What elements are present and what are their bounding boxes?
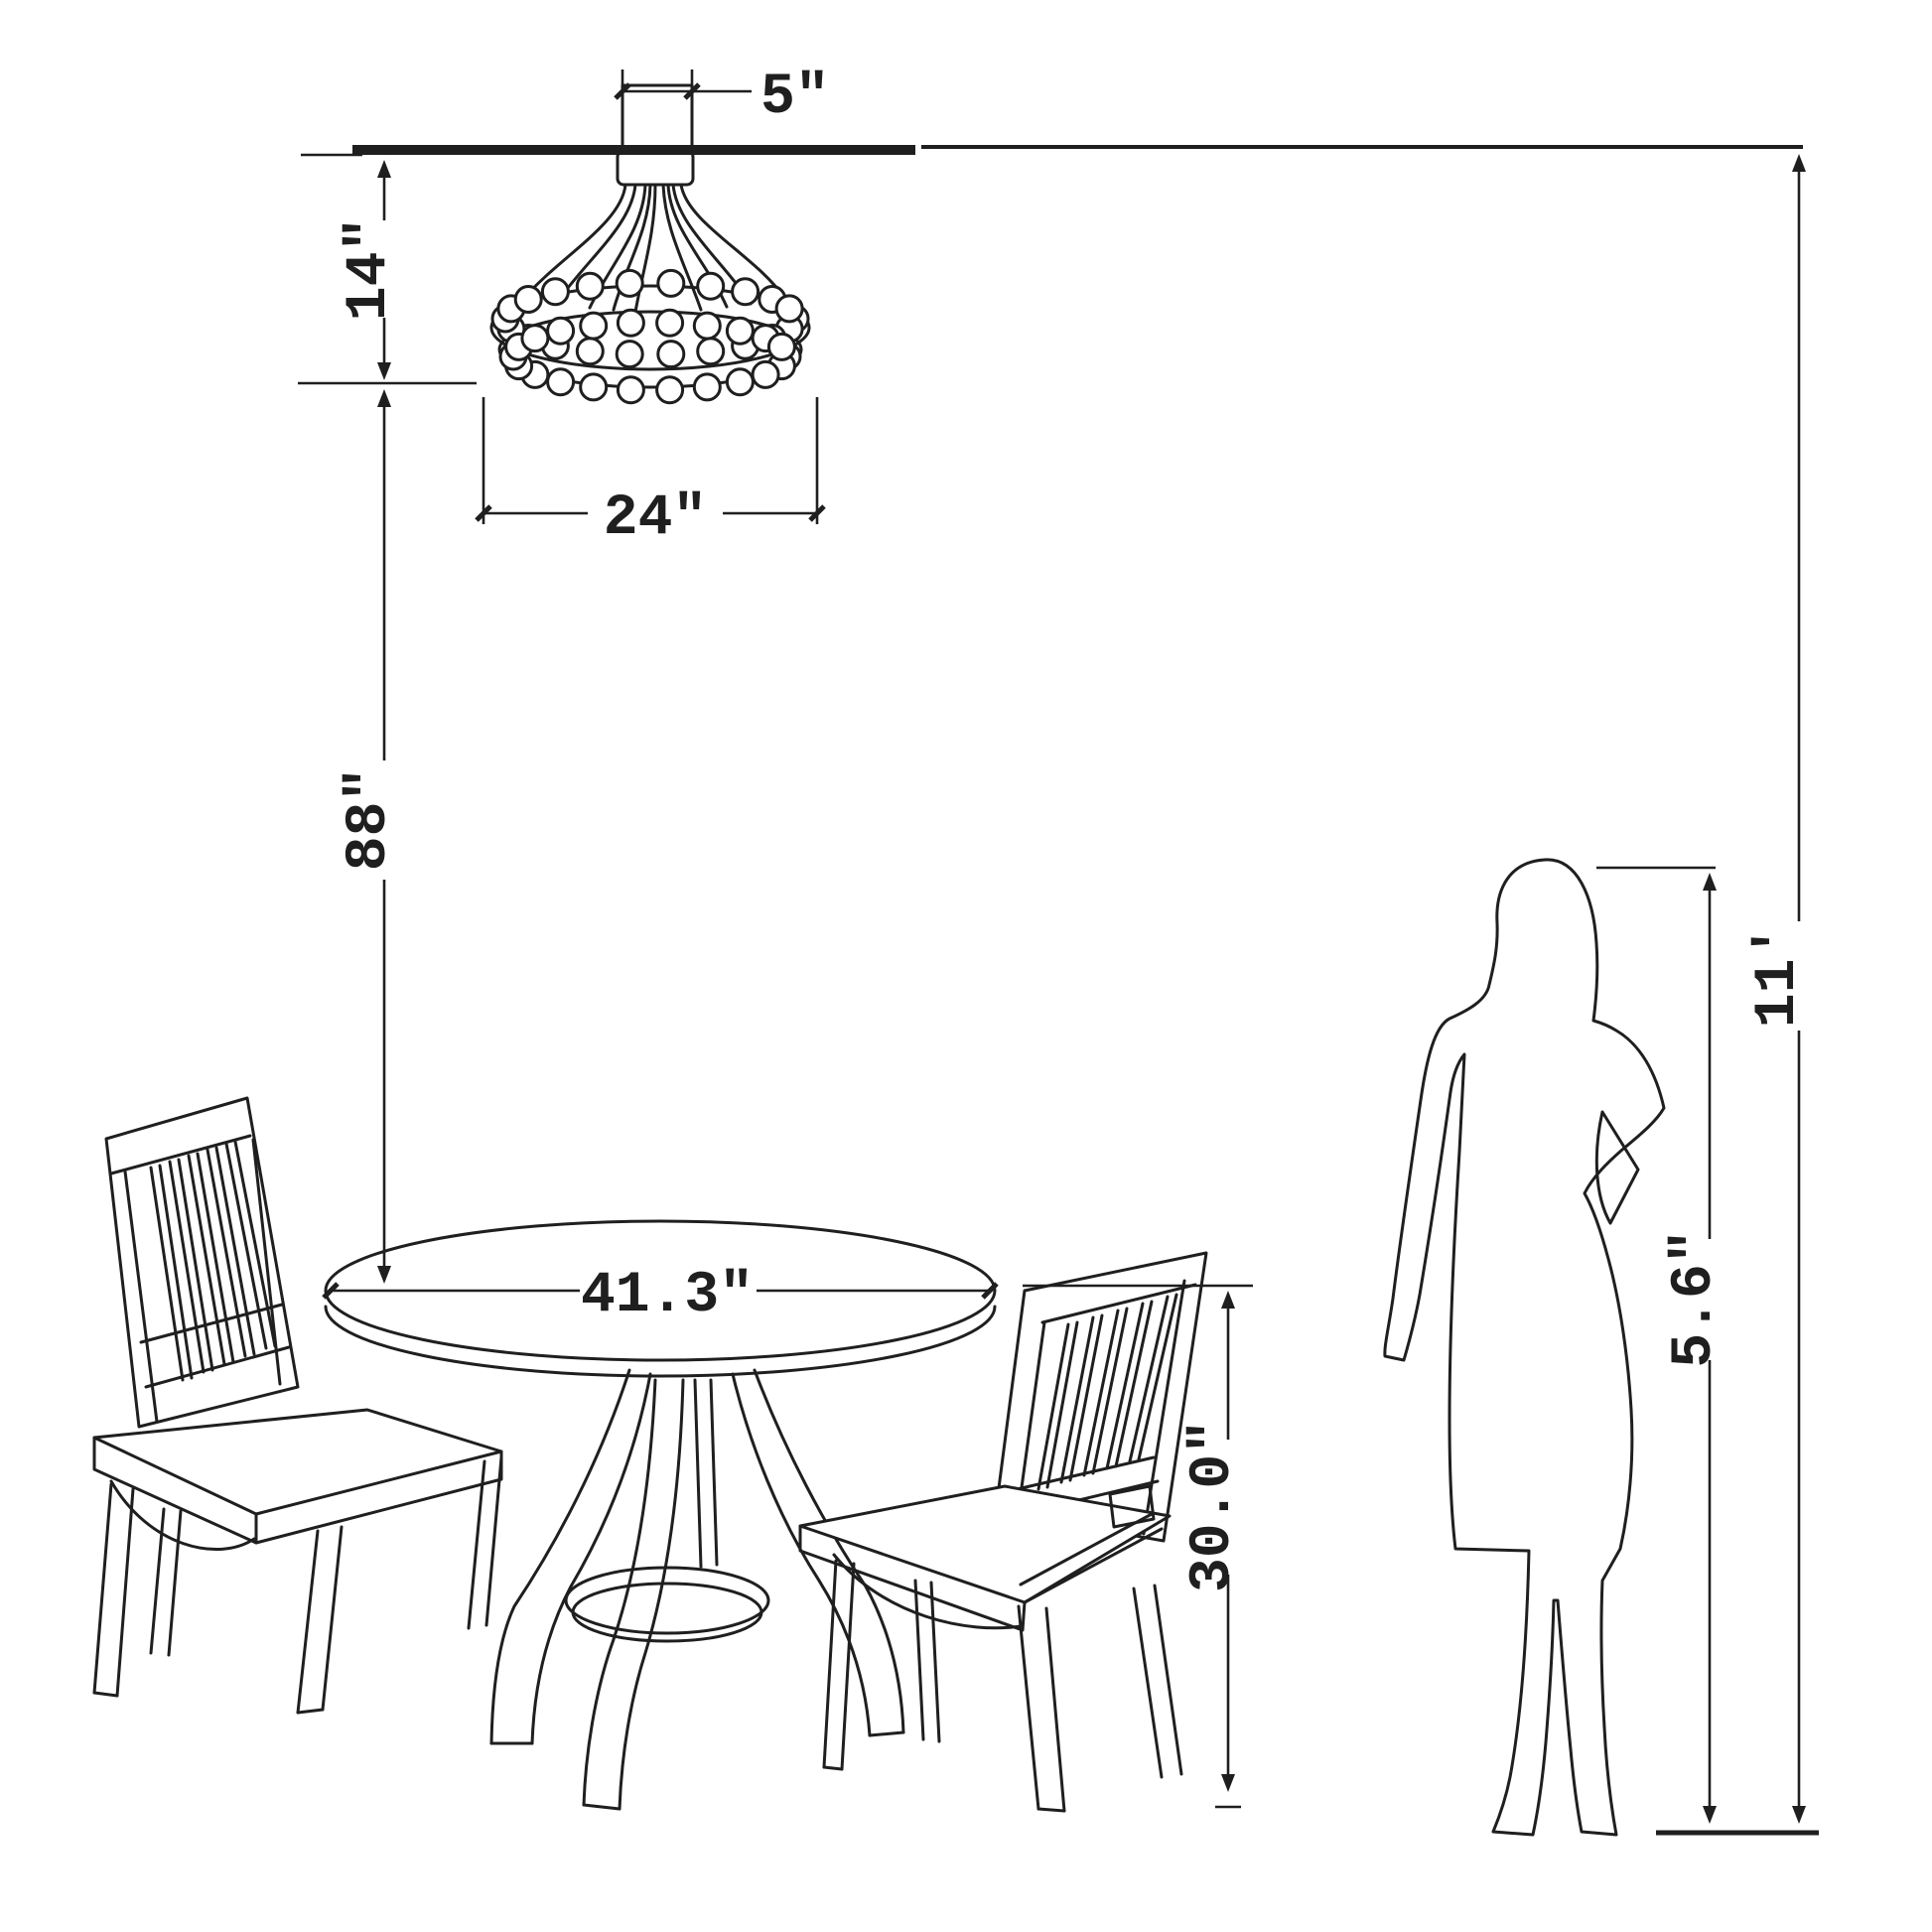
chandelier-bead [618,377,643,403]
chandelier-bead [753,361,778,387]
chandelier-bead [581,374,607,400]
chandelier-bead [733,279,759,305]
chandelier-bead [542,279,568,305]
chandelier-bead [515,287,541,313]
dim-fixture-height: 14" [298,160,477,383]
woman-outline [1385,860,1664,1835]
chandelier-bead [694,374,720,400]
dim-label-person-height: 5.6" [1663,1229,1727,1367]
dim-label-table-diameter: 41.3" [581,1264,754,1328]
chandelier-bead [658,270,684,296]
chandelier-bead [768,334,794,359]
chandelier-bead [657,377,683,403]
chandelier-bead [581,313,607,339]
table-pedestal [491,1370,903,1809]
chair-left [94,1098,501,1713]
chandelier-bead [548,369,574,395]
woman-silhouette [1385,860,1664,1835]
chandelier-bead [577,339,603,364]
chandelier-bead [698,273,724,299]
chandelier-bead [617,270,642,296]
chandelier [491,85,809,403]
chandelier-bead [522,326,548,351]
dim-label-fixture-to-table: 88" [338,767,402,871]
chandelier-bead [657,310,683,336]
dim-fixture-diameter: 24" [477,397,824,551]
pedestal-ring-stretcher [566,1568,768,1633]
dim-label-fixture-height: 14" [338,217,402,321]
chandelier-bead [694,313,720,339]
chandelier-bead [727,318,753,344]
chandelier-bead [776,296,802,322]
dimension-diagram-page: 5" 14" 24" [0,0,1932,1932]
dim-fixture-to-table: 88" [338,389,402,1284]
dim-person-height: 5.6" [1596,868,1727,1824]
chandelier-bead [698,339,724,364]
dim-label-ceiling-height: 11' [1746,924,1811,1028]
dim-canopy-width: 5" [616,66,830,130]
dim-ceiling-height: 11' [1746,154,1811,1824]
furniture-dimension-diagram: 5" 14" 24" [0,0,1932,1932]
chandelier-bead [727,369,753,395]
chandelier-mount-box [622,85,692,149]
chandelier-bead [658,342,684,367]
chandelier-bead [577,273,603,299]
dim-label-fixture-diameter: 24" [604,486,707,551]
chandelier-bead [617,342,642,367]
chandelier-bead [618,310,643,336]
ceiling-line [301,147,1803,155]
chair-right-legs [824,1561,1181,1811]
dim-label-canopy-width: 5" [760,66,830,130]
chandelier-canopy [618,151,693,185]
dim-label-table-height: 30.0" [1181,1420,1246,1592]
chandelier-beads [492,270,808,402]
chandelier-bead [548,318,574,344]
